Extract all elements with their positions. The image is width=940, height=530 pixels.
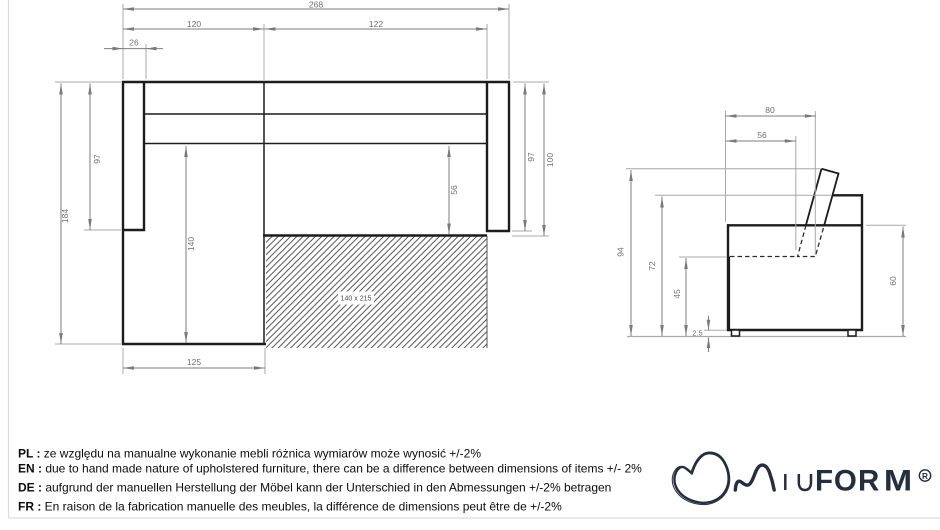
svg-text:EN : due to hand made nature o: EN : due to hand made nature of upholste…	[18, 462, 642, 476]
svg-text:94: 94	[616, 247, 626, 257]
svg-text:72: 72	[647, 261, 657, 271]
svg-text:97: 97	[526, 152, 536, 162]
svg-text:2.5: 2.5	[692, 329, 702, 338]
svg-text:268: 268	[309, 0, 323, 10]
svg-text:FR : En raison de la fabricati: FR : En raison de la fabrication manuell…	[18, 500, 562, 514]
svg-text:R: R	[858, 465, 879, 498]
svg-text:O: O	[834, 465, 857, 498]
svg-text:45: 45	[672, 289, 682, 299]
svg-text:56: 56	[757, 130, 767, 140]
svg-text:60: 60	[888, 276, 898, 286]
svg-text:140 x 215: 140 x 215	[341, 296, 372, 303]
svg-text:DE : aufgrund der manuellen He: DE : aufgrund der manuellen Herstellung …	[18, 481, 611, 495]
svg-text:R: R	[922, 472, 928, 481]
svg-text:120: 120	[187, 19, 201, 29]
svg-text:PL : ze względu na manualne wy: PL : ze względu na manualne wykonanie me…	[18, 446, 481, 460]
svg-text:140: 140	[186, 237, 196, 251]
svg-text:80: 80	[765, 105, 775, 115]
svg-text:122: 122	[369, 19, 383, 29]
svg-text:97: 97	[92, 154, 102, 164]
svg-text:100: 100	[545, 153, 555, 167]
svg-text:M: M	[884, 464, 912, 497]
svg-text:125: 125	[187, 357, 201, 367]
svg-text:26: 26	[129, 38, 139, 48]
svg-text:184: 184	[60, 209, 70, 223]
svg-text:56: 56	[449, 185, 459, 195]
svg-text:F: F	[815, 465, 833, 498]
